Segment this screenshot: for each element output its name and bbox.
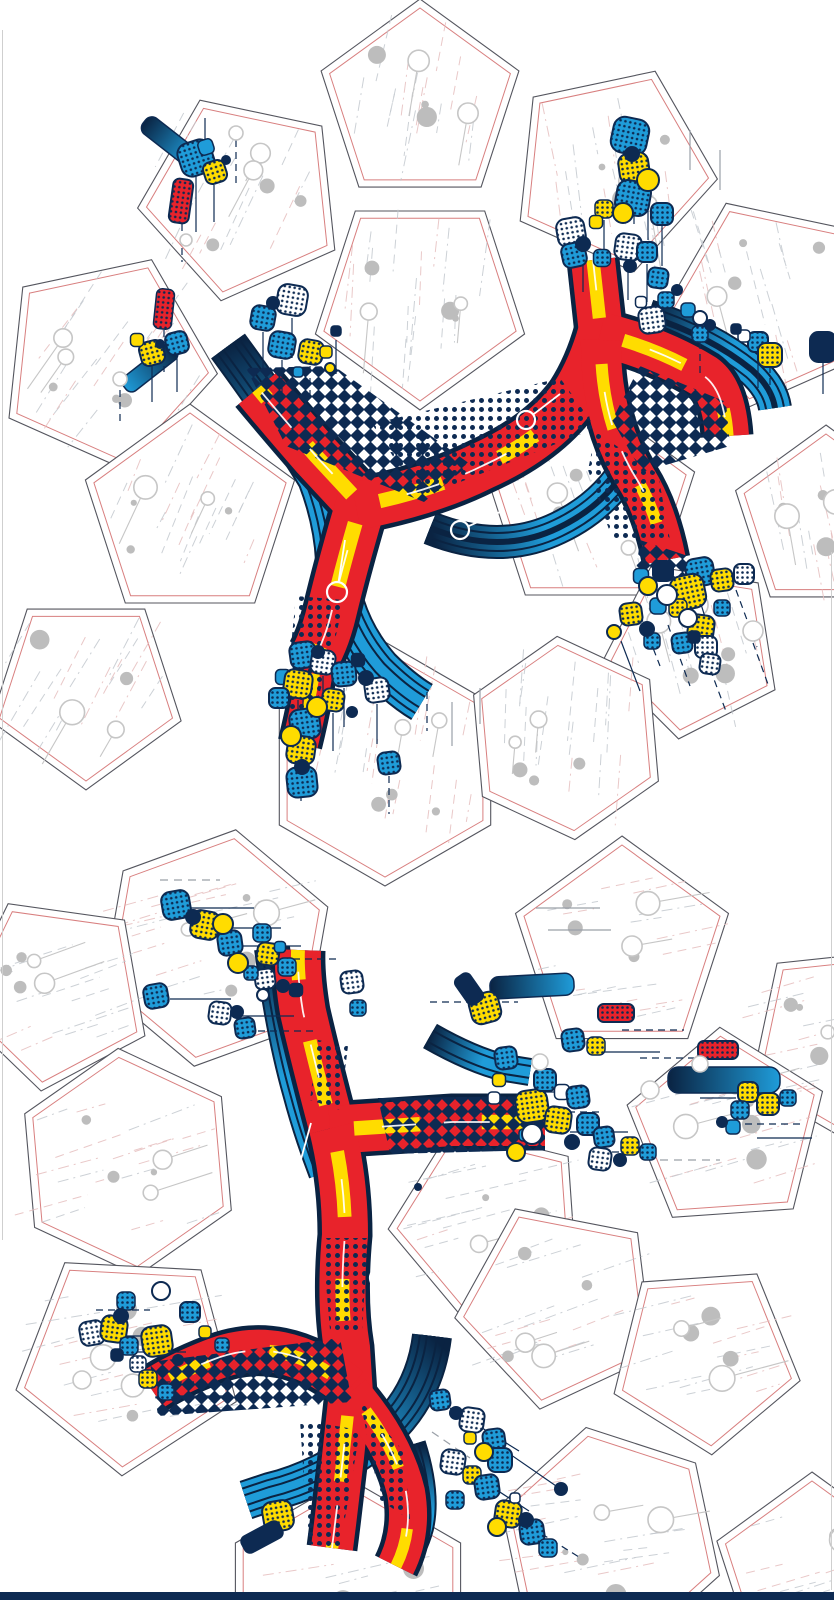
- gray-dot: [723, 1351, 739, 1367]
- navy-dot: [266, 296, 280, 310]
- outlined-dot: [516, 1333, 535, 1352]
- outlined-dot: [594, 1505, 609, 1520]
- chip-halftone: [350, 1000, 366, 1016]
- bottom-bar: [0, 1592, 834, 1600]
- outlined-dot: [621, 541, 635, 555]
- outlined-dot: [360, 303, 377, 320]
- chip-halftone: [640, 1144, 656, 1160]
- gray-dot: [112, 395, 120, 403]
- gray-dot: [683, 668, 699, 684]
- chip: [320, 346, 332, 358]
- gray-dot: [260, 178, 275, 193]
- white-dot: [679, 609, 697, 627]
- outlined-dot: [27, 954, 40, 967]
- chip-halftone: [253, 924, 271, 942]
- yellow-dot: [307, 697, 327, 717]
- navy-dot: [639, 621, 655, 637]
- motif-lollipop-circle: [284, 1170, 306, 1192]
- outlined-dot: [432, 713, 447, 728]
- pattern-cell: [321, 0, 519, 187]
- outlined-dot: [395, 720, 410, 735]
- white-dot: [152, 1282, 170, 1300]
- outlined-dot: [532, 1344, 555, 1367]
- motif-lollipop-circle: [370, 1268, 390, 1288]
- navy-dot: [311, 645, 325, 659]
- cell-outer-outline: [614, 1274, 800, 1455]
- outlined-dot: [143, 1185, 158, 1200]
- gray-dot: [30, 630, 50, 650]
- chip-halftone: [494, 1046, 519, 1071]
- gray-dot: [810, 1047, 828, 1065]
- gray-dot: [365, 261, 380, 276]
- outlined-dot: [134, 476, 157, 499]
- chip: [726, 1120, 740, 1134]
- gray-dot: [16, 952, 26, 962]
- chip: [293, 367, 303, 377]
- chip-halftone: [446, 1491, 464, 1509]
- outlined-dot: [674, 1114, 698, 1138]
- chip: [331, 326, 341, 336]
- gray-dot: [417, 107, 437, 127]
- pattern-cell: [717, 1472, 834, 1600]
- chip-halftone: [473, 1473, 500, 1500]
- chip-halftone: [598, 1004, 634, 1022]
- chip-halftone: [543, 1105, 572, 1134]
- gray-dot: [432, 807, 440, 815]
- gray-dot: [512, 762, 527, 777]
- outlined-dot: [641, 1081, 659, 1099]
- chip: [636, 297, 647, 308]
- gray-dot: [721, 647, 735, 661]
- motif-lollipop-line: [468, 512, 500, 526]
- outlined-dot: [692, 1056, 708, 1072]
- chip-halftone: [738, 1082, 758, 1102]
- outlined-dot: [229, 126, 243, 140]
- gray-dot: [482, 1194, 489, 1201]
- gray-dot: [151, 1169, 157, 1175]
- gradient-bar: [489, 973, 574, 999]
- outlined-dot: [458, 103, 478, 123]
- gray-dot: [568, 920, 583, 935]
- navy-dot: [230, 1005, 244, 1019]
- outlined-dot: [532, 1054, 548, 1070]
- gray-dot: [582, 1280, 593, 1291]
- white-dot: [257, 989, 269, 1001]
- gradient-bar: [668, 1067, 780, 1093]
- white-dot: [522, 1124, 542, 1144]
- chip-halftone: [269, 688, 289, 708]
- outlined-dot: [408, 50, 429, 71]
- gray-dot: [502, 1350, 514, 1362]
- gray-dot: [225, 985, 237, 997]
- outlined-dot: [201, 492, 214, 505]
- outlined-dot: [113, 372, 127, 386]
- navy-dot: [185, 909, 201, 925]
- yellow-dot: [475, 1443, 493, 1461]
- navy-dot: [613, 1153, 627, 1167]
- outlined-dot: [636, 892, 660, 916]
- outlined-dot: [251, 143, 271, 163]
- navy-dot: [704, 319, 716, 331]
- navy-dot: [716, 1116, 728, 1128]
- navy-dot: [671, 284, 683, 296]
- chip-halftone: [758, 343, 782, 367]
- halftone-patch: [322, 1238, 368, 1330]
- outlined-dot: [707, 287, 727, 307]
- gray-dot: [368, 46, 386, 64]
- yellow-dot: [607, 625, 621, 639]
- yellow-dot: [213, 914, 233, 934]
- chip-halftone: [117, 1292, 135, 1310]
- outlined-dot: [180, 234, 192, 246]
- gray-dot: [108, 1171, 120, 1183]
- chip-halftone: [534, 1069, 556, 1091]
- chip: [510, 1493, 520, 1503]
- outlined-dot: [470, 1235, 487, 1252]
- outlined-dot: [60, 700, 85, 725]
- cell-outer-outline: [0, 609, 181, 790]
- navy-dot: [276, 979, 290, 993]
- cell-outer-outline: [717, 1472, 834, 1600]
- yellow-dot: [281, 726, 301, 746]
- gray-dot: [784, 998, 798, 1012]
- navy-dot: [575, 236, 591, 252]
- yellow-dot: [637, 169, 659, 191]
- chip-halftone: [734, 564, 754, 584]
- outlined-dot: [775, 504, 799, 528]
- chip-halftone: [731, 1101, 749, 1119]
- chip-halftone: [377, 751, 402, 776]
- chip: [488, 1092, 500, 1104]
- chip: [352, 654, 365, 667]
- chip-halftone: [714, 600, 730, 616]
- chip-halftone: [588, 1147, 613, 1172]
- gray-dot: [206, 238, 219, 251]
- outlined-dot: [648, 1507, 674, 1533]
- gray-dot: [131, 500, 137, 506]
- chip-halftone: [429, 1389, 452, 1412]
- navy-dot: [518, 1512, 534, 1528]
- chip-halftone: [780, 1090, 796, 1106]
- chip: [493, 1074, 506, 1087]
- chip-halftone: [699, 653, 722, 676]
- navy-dot: [623, 259, 637, 273]
- chip: [290, 984, 303, 997]
- gray-dot: [371, 797, 386, 812]
- chip-halftone: [637, 305, 666, 334]
- chip: [590, 216, 603, 229]
- motif-lollipop-line: [374, 1226, 379, 1268]
- outlined-dot: [743, 621, 763, 641]
- chip-halftone: [647, 267, 670, 290]
- pattern-cell: [613, 1274, 800, 1455]
- chip: [111, 1349, 123, 1361]
- gray-dot: [127, 1410, 139, 1422]
- chip-halftone: [539, 1539, 557, 1557]
- chip: [731, 324, 741, 334]
- chip: [131, 334, 144, 347]
- chip: [653, 561, 673, 581]
- white-dot: [657, 585, 677, 605]
- navy-dot: [172, 1354, 184, 1366]
- pattern-cell: [0, 609, 181, 790]
- chip-halftone: [180, 1302, 200, 1322]
- chip-halftone: [139, 1370, 157, 1388]
- gray-dot: [82, 1115, 92, 1125]
- navy-dot: [414, 1183, 422, 1191]
- artwork: [0, 0, 834, 1600]
- gray-dot: [570, 469, 583, 482]
- navy-dot: [449, 1406, 463, 1420]
- outlined-dot: [821, 1025, 834, 1038]
- gray-dot: [518, 1247, 531, 1260]
- gray-dot: [813, 242, 825, 254]
- chip-halftone: [621, 1137, 639, 1155]
- gray-dot: [14, 981, 27, 994]
- chip-halftone: [158, 1384, 174, 1400]
- outlined-dot: [58, 349, 74, 365]
- chip-halftone: [215, 1338, 229, 1352]
- yellow-dot: [507, 1143, 525, 1161]
- pattern-cell: [499, 1428, 719, 1600]
- gray-dot: [739, 239, 747, 247]
- navy-dot: [294, 759, 310, 775]
- outlined-dot: [35, 973, 55, 993]
- chip-halftone: [757, 1093, 779, 1115]
- chip-halftone: [658, 292, 674, 308]
- chip-halftone: [561, 1028, 586, 1053]
- chip-halftone: [340, 970, 365, 995]
- outlined-dot: [54, 329, 72, 347]
- outlined-dot: [153, 1150, 172, 1169]
- chip-halftone: [208, 1001, 233, 1026]
- outlined-dot: [73, 1371, 91, 1389]
- chip-halftone: [566, 1085, 591, 1110]
- gray-dot: [529, 775, 539, 785]
- outlined-dot: [509, 736, 521, 748]
- gray-dot: [660, 135, 670, 145]
- chip-halftone: [593, 1126, 616, 1149]
- gray-dot: [573, 758, 585, 770]
- outlined-dot: [454, 297, 467, 310]
- chip: [810, 332, 834, 362]
- gray-dot: [728, 276, 741, 289]
- yellow-dot: [325, 363, 335, 373]
- outlined-dot: [547, 483, 567, 503]
- chip-halftone: [651, 203, 673, 225]
- navy-dot: [346, 706, 358, 718]
- gray-dot: [120, 672, 133, 685]
- navy-dot: [221, 155, 231, 165]
- artwork-canvas: [0, 0, 834, 1600]
- gray-dot: [126, 545, 134, 553]
- outlined-dot: [244, 161, 263, 180]
- gray-dot: [295, 195, 307, 207]
- navy-dot: [113, 1308, 129, 1324]
- chip-halftone: [710, 568, 735, 593]
- chip-halftone: [594, 250, 611, 267]
- gray-dot: [746, 1149, 766, 1169]
- gray-dot: [386, 789, 398, 801]
- chip: [275, 942, 286, 953]
- chip-halftone: [234, 1017, 257, 1040]
- outlined-dot: [530, 711, 547, 728]
- outlined-dot: [709, 1366, 735, 1392]
- outlined-dot: [254, 900, 280, 926]
- cell-outer-outline: [321, 0, 519, 187]
- gray-dot: [452, 315, 459, 322]
- chip-halftone: [619, 602, 644, 627]
- chip-halftone: [278, 958, 296, 976]
- yellow-dot: [639, 577, 657, 595]
- chip: [464, 1432, 476, 1444]
- navy-dot: [155, 339, 165, 349]
- navy-dot: [554, 1482, 568, 1496]
- gray-dot: [599, 164, 606, 171]
- navy-dot: [564, 1134, 580, 1150]
- navy-dot: [624, 146, 640, 162]
- navy-dot: [358, 670, 374, 686]
- gray-dot: [225, 507, 232, 514]
- gray-dot: [49, 383, 58, 392]
- yellow-dot: [613, 203, 633, 223]
- chip-halftone: [140, 1324, 174, 1358]
- chip: [688, 631, 700, 643]
- chip-halftone: [587, 1037, 605, 1055]
- yellow-dot: [228, 953, 248, 973]
- yellow-dot: [488, 1518, 506, 1536]
- gray-dot: [243, 894, 251, 902]
- gray-dot: [577, 1554, 589, 1566]
- chip-halftone: [637, 242, 657, 262]
- outlined-dot: [622, 936, 642, 956]
- outlined-dot: [674, 1321, 689, 1336]
- outlined-dot: [108, 721, 125, 738]
- chip: [199, 1326, 211, 1338]
